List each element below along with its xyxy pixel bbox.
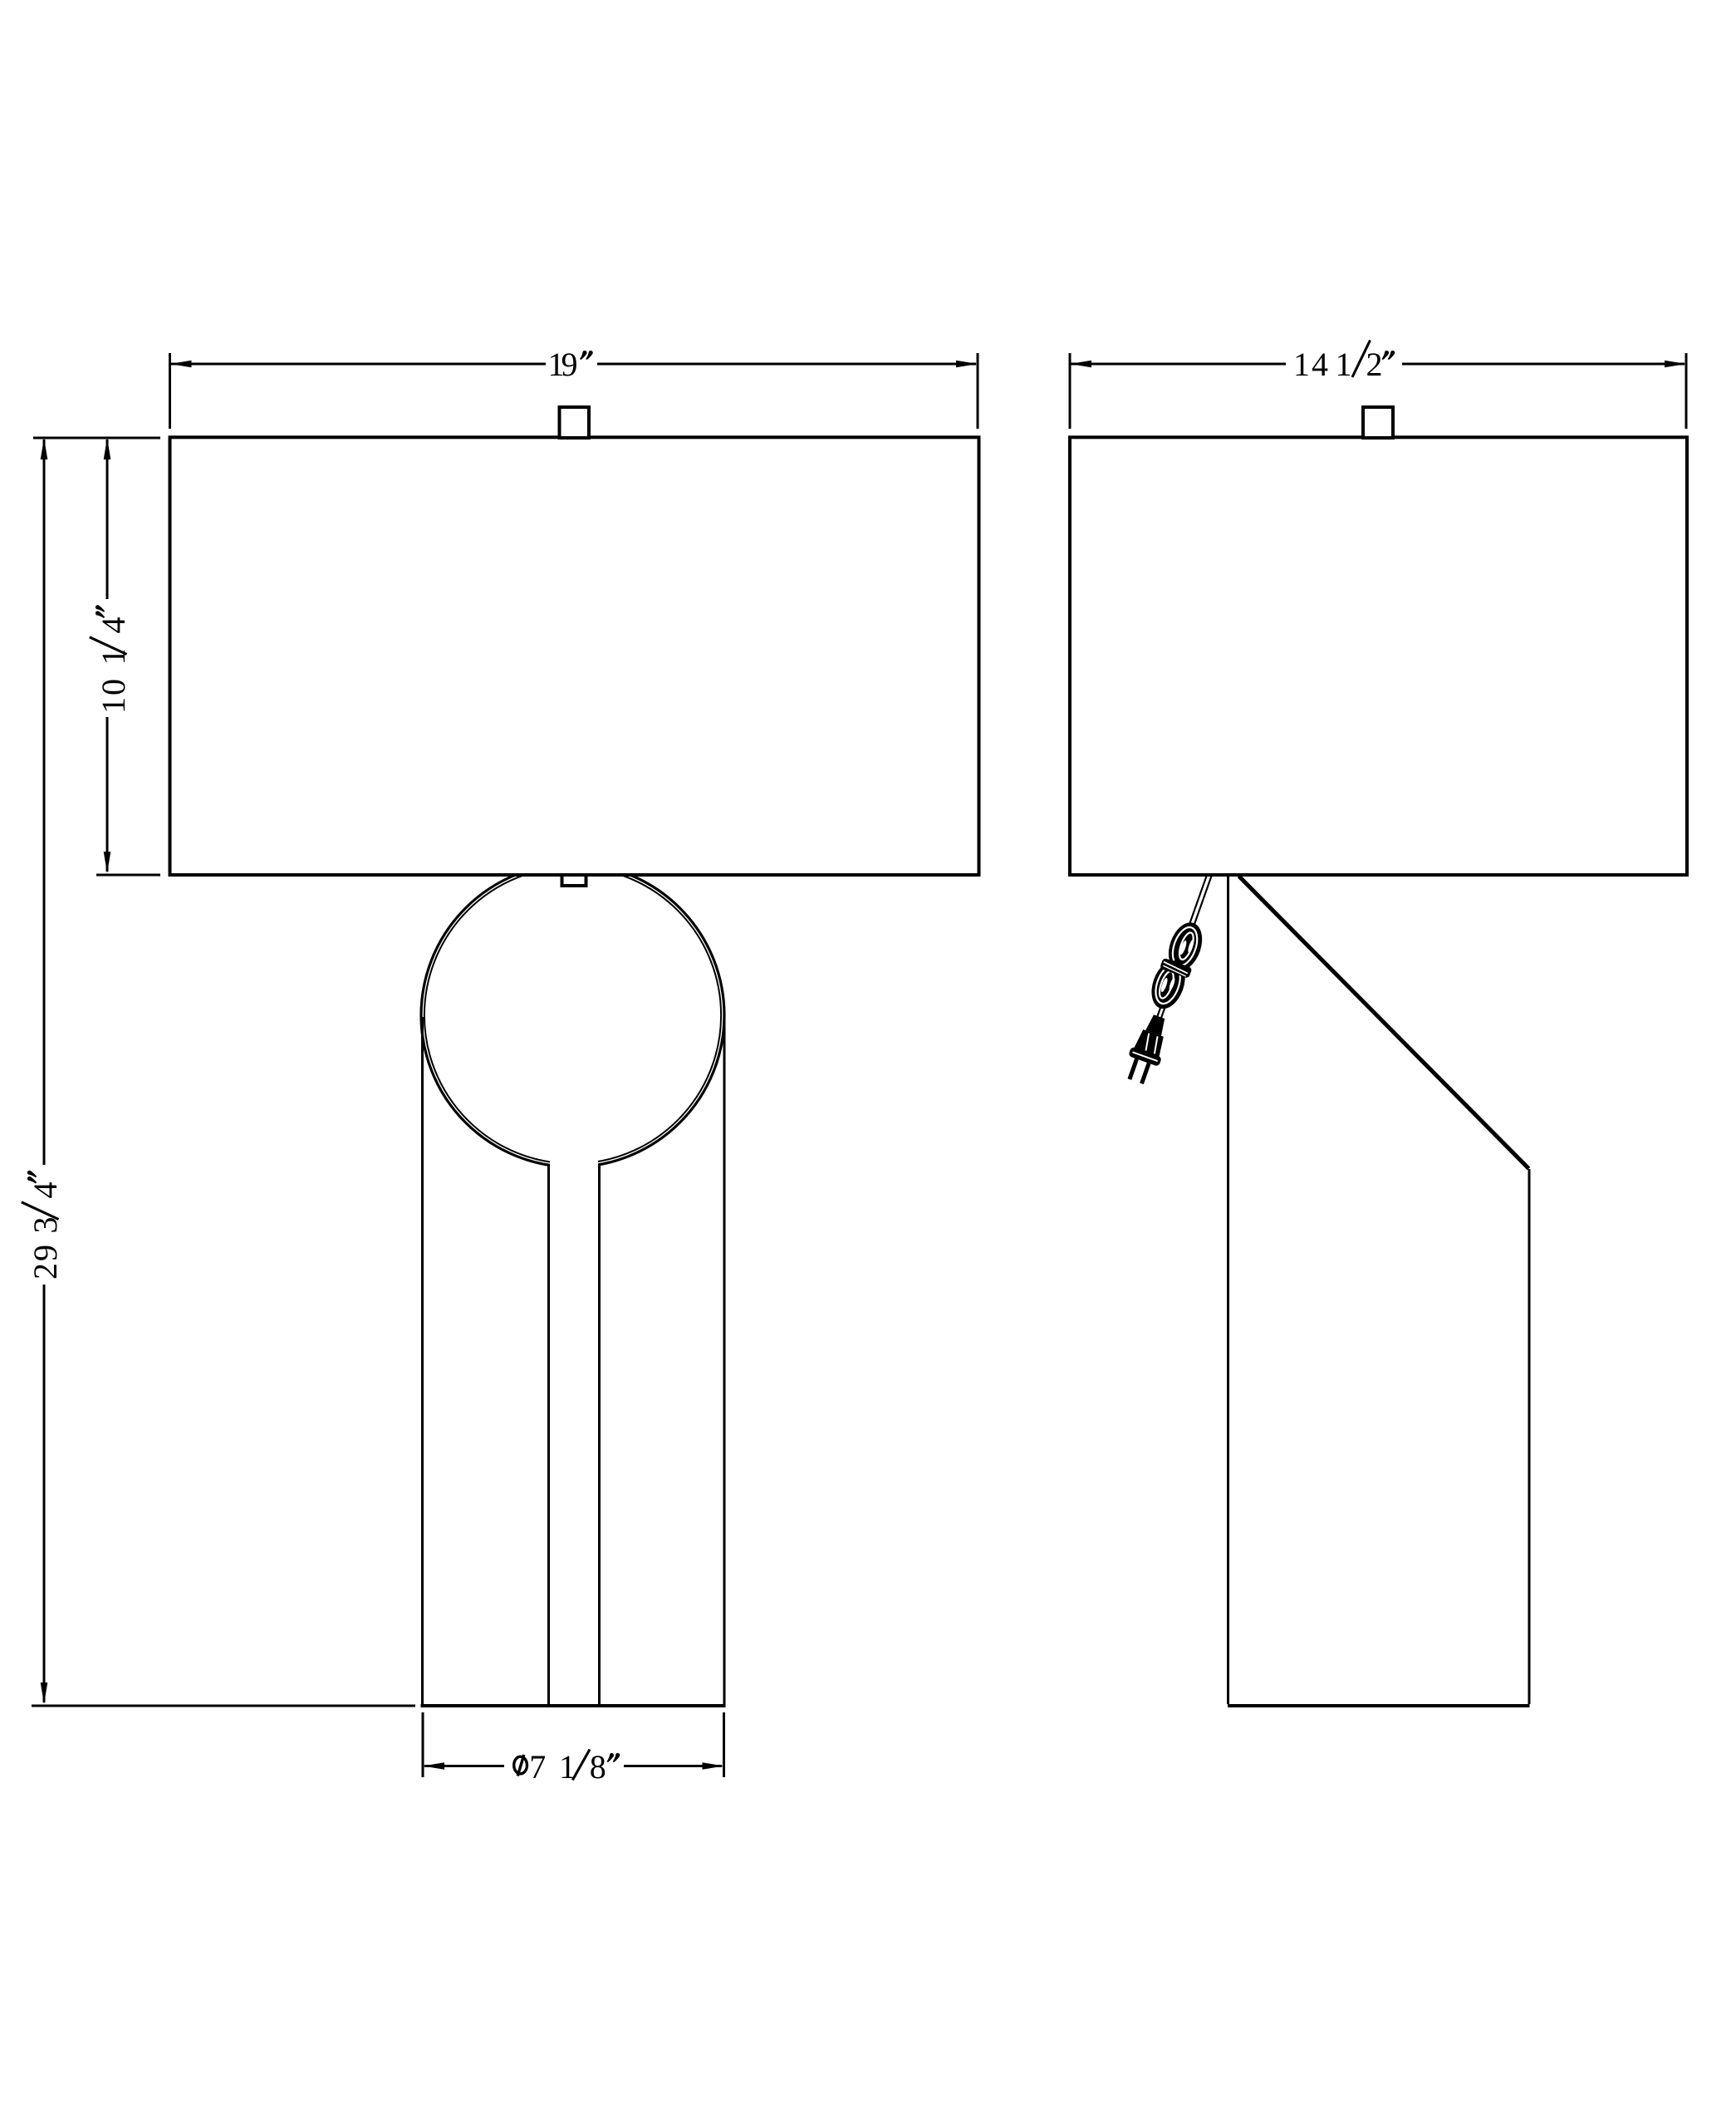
svg-text:19: 19 bbox=[548, 346, 577, 383]
svg-text:10: 10 bbox=[95, 677, 132, 714]
svg-text:7: 7 bbox=[529, 1748, 546, 1786]
svg-text:1: 1 bbox=[1336, 346, 1352, 383]
svg-text:2: 2 bbox=[1366, 346, 1383, 383]
svg-text:8: 8 bbox=[590, 1748, 606, 1786]
svg-text:14: 14 bbox=[1293, 346, 1330, 383]
svg-text:1: 1 bbox=[95, 649, 132, 666]
svg-text:4: 4 bbox=[27, 1182, 64, 1199]
svg-text:4: 4 bbox=[95, 617, 132, 634]
svg-text:29: 29 bbox=[27, 1243, 64, 1280]
